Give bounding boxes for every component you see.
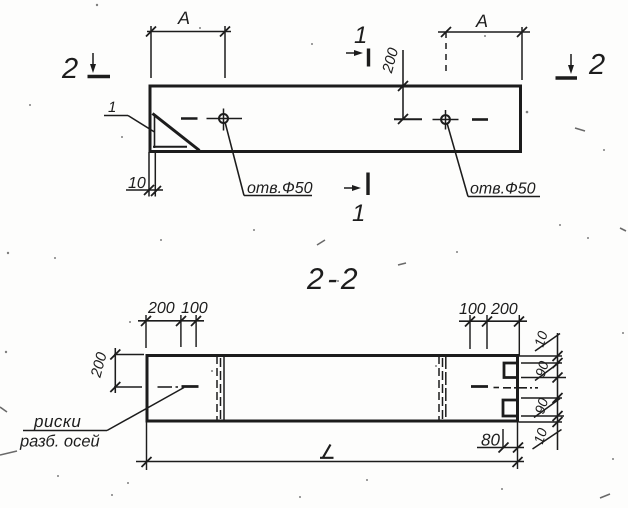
svg-text:1: 1	[108, 99, 116, 116]
svg-text:10: 10	[530, 426, 550, 446]
svg-text:10: 10	[128, 175, 146, 192]
svg-text:100: 100	[459, 301, 486, 318]
svg-text:90: 90	[531, 396, 551, 416]
svg-text:2: 2	[588, 49, 605, 81]
svg-text:200: 200	[87, 350, 110, 380]
svg-text:1: 1	[352, 200, 365, 227]
svg-text:200: 200	[147, 300, 175, 317]
svg-text:100: 100	[181, 300, 208, 317]
svg-text:90: 90	[532, 359, 552, 379]
svg-text:2: 2	[61, 53, 78, 85]
svg-text:80: 80	[481, 431, 500, 450]
svg-text:200: 200	[379, 45, 402, 75]
svg-text:A: A	[475, 11, 488, 31]
svg-text:отв.Ф50: отв.Ф50	[247, 180, 313, 197]
svg-text:риски: риски	[33, 412, 81, 431]
svg-text:200: 200	[490, 301, 518, 318]
svg-text:разб. осей: разб. осей	[19, 433, 100, 451]
svg-text:1: 1	[354, 22, 367, 49]
svg-text:отв.Ф50: отв.Ф50	[470, 181, 536, 198]
svg-text:10: 10	[531, 329, 551, 349]
svg-text:A: A	[177, 8, 190, 28]
svg-text:2-2: 2-2	[306, 263, 361, 296]
